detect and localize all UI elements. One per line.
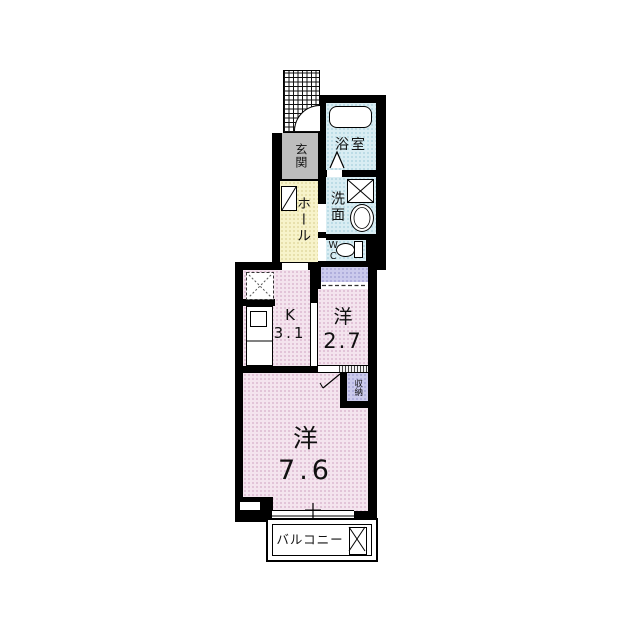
balcony: バルコニー <box>266 518 378 562</box>
western-large-label: 洋 <box>293 419 318 455</box>
kitchen-sink <box>250 311 267 327</box>
washbasin-icon <box>350 204 374 232</box>
room-bathroom-label: 浴室 <box>326 136 376 154</box>
room-entrance-label: 玄関 <box>288 135 312 177</box>
western-large-area: 7.6 <box>278 455 333 486</box>
storage: 収納 <box>347 373 368 401</box>
room-washroom-label: 洗面 <box>327 182 347 232</box>
closet <box>321 267 368 282</box>
room-kitchen-label: K 3.1 <box>272 300 308 348</box>
room-sliding-door <box>318 365 339 373</box>
wc-door-gap <box>318 238 326 261</box>
bathtub-icon <box>329 106 372 128</box>
kitchen-label: K <box>285 306 295 324</box>
water-heater-icon <box>349 527 367 555</box>
western-small-label: 洋 <box>333 302 352 329</box>
room-western-large-label: 洋 7.6 <box>243 408 368 496</box>
kitchen-door-gap <box>282 263 308 270</box>
washroom-door-gap <box>318 204 326 232</box>
western-small-area: 2.7 <box>323 329 362 353</box>
washing-machine-pan-icon <box>347 179 374 203</box>
room-western-small-label: 洋 2.7 <box>318 298 368 356</box>
storage-label: 収納 <box>353 379 362 396</box>
balcony-label: バルコニー <box>276 526 344 554</box>
floor-plan: 玄関 浴室 洗面 WC ホール K 3.1 洋 2.7 <box>0 0 640 640</box>
room-wc-label: WC <box>327 240 339 261</box>
closet-door-strip <box>321 282 368 289</box>
wall-fridge-stub <box>243 299 275 306</box>
toilet-tank-icon <box>354 241 363 258</box>
kitchen-room-sliding-door <box>310 303 318 366</box>
side-window <box>239 501 261 511</box>
kitchen-area: 3.1 <box>274 324 307 342</box>
shoe-cabinet <box>281 186 297 211</box>
storage-top-strip <box>339 365 368 373</box>
bathroom-door-gap <box>327 170 342 177</box>
